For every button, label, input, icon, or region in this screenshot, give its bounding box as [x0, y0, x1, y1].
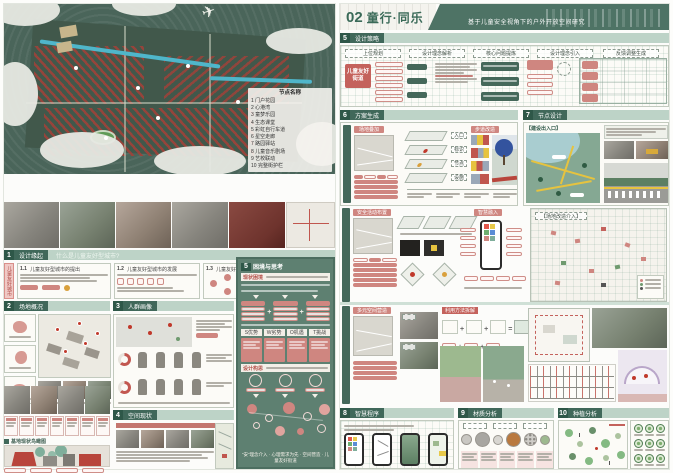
section-3-bar: 3 人群画像	[113, 301, 234, 311]
ground-stripe	[618, 394, 667, 402]
map-pin-icon	[63, 349, 68, 354]
dome-playground-render	[618, 350, 667, 402]
text-line	[206, 360, 232, 362]
problem-box	[481, 92, 519, 101]
grey-building	[43, 456, 57, 467]
feature-pill	[460, 252, 476, 256]
plan-tag	[552, 155, 566, 159]
text-line	[537, 453, 552, 455]
retrofit-plan: 【场地改造介入】	[530, 208, 667, 302]
text-line	[435, 66, 470, 68]
text-line	[311, 347, 328, 349]
plan-mark	[601, 227, 606, 231]
map-dot	[148, 331, 152, 335]
feature-pill-row	[464, 276, 526, 281]
column-header: 反馈调整生成	[603, 49, 659, 58]
persona-figure	[174, 352, 183, 368]
tree-symbol	[589, 427, 596, 434]
key-concept-box: 儿童友好街道	[345, 64, 371, 88]
pill-tag	[20, 285, 38, 290]
card-header	[98, 418, 108, 421]
mini-table	[407, 189, 517, 203]
text-line	[634, 449, 643, 451]
cloud-sketch	[112, 4, 176, 16]
section-swatch	[471, 135, 489, 145]
crosswalk-stripes	[608, 191, 664, 198]
tree-legend	[630, 420, 669, 469]
persona-figure	[138, 352, 147, 368]
mini-pill	[382, 258, 397, 262]
legend-item: 3 童梦乐园	[251, 112, 329, 119]
plan-mark	[555, 281, 561, 286]
section-9-bar: 9 材质分析	[458, 408, 554, 418]
layer-dot	[416, 163, 422, 167]
feature-card	[50, 416, 64, 436]
building-block	[66, 331, 84, 345]
text-line	[462, 456, 474, 458]
table-col	[436, 192, 461, 203]
section-5-bar: 5 设计策略	[340, 33, 669, 43]
card-header	[21, 418, 31, 421]
card-header	[52, 418, 62, 421]
node-legend: 节点名称 1 门户花园 2 心港湾 3 童梦乐园 4 生态课堂 5 彩虹自行车道…	[248, 88, 332, 172]
text-line	[481, 459, 496, 461]
text-line	[493, 196, 510, 198]
tree-icon	[656, 424, 665, 433]
pill-header	[241, 301, 265, 306]
text-line	[116, 451, 214, 453]
zone-patch	[439, 451, 446, 456]
text-line	[311, 341, 328, 343]
down-arrow-icon	[253, 295, 259, 299]
axon-line	[218, 431, 231, 438]
down-arrow-icon	[253, 394, 259, 398]
swot-detail	[241, 338, 262, 362]
section-number: 1	[4, 250, 14, 260]
airplane-sketch-icon	[202, 4, 215, 22]
material-swatch	[506, 432, 521, 447]
street-photo	[191, 430, 214, 448]
section-title: 困境与思考	[253, 262, 283, 271]
tree-icon	[634, 439, 643, 448]
text-line	[462, 453, 477, 455]
material-note	[480, 451, 497, 468]
plan-mark	[589, 269, 594, 273]
diamond-dot	[442, 272, 447, 277]
section-number: 4	[113, 410, 123, 420]
text-line	[518, 456, 530, 458]
plan-red-label	[609, 424, 625, 426]
pill-item	[527, 74, 553, 79]
formula-box	[490, 320, 506, 334]
legend-item: 4 生态课堂	[251, 120, 329, 127]
text-line	[116, 460, 190, 462]
column-header: 设计理念解析	[409, 49, 465, 58]
text-line	[462, 459, 477, 461]
text-line	[606, 128, 666, 130]
swot-cell: W劣势	[264, 329, 285, 336]
pill-item	[241, 307, 265, 311]
section-title: 方案生成	[350, 110, 384, 120]
text-line	[464, 196, 481, 198]
board-number: 02	[346, 9, 363, 26]
pill-row	[353, 366, 397, 370]
app-tile	[484, 224, 489, 229]
issue-col	[306, 301, 330, 321]
layer-label: 设施	[451, 174, 467, 181]
zone-patch	[433, 441, 439, 446]
text-line	[500, 453, 515, 455]
note-box	[604, 125, 668, 139]
card-header	[6, 418, 16, 421]
legend-item: 8 儿童音乐剧场	[251, 149, 329, 156]
caption-pill	[56, 468, 78, 473]
app-tile	[353, 447, 357, 451]
elevation-band	[530, 388, 614, 399]
section-number: 8	[340, 408, 350, 418]
bubble	[319, 404, 330, 415]
swot-cell: O机遇	[287, 329, 308, 336]
persona-figure	[156, 352, 165, 368]
site-photo	[116, 202, 171, 248]
accent-dot	[644, 374, 648, 378]
section-swatch	[471, 174, 489, 184]
birdseye-photo	[592, 308, 667, 348]
photo-tag	[402, 314, 416, 320]
text-line	[435, 63, 477, 65]
pill-item	[375, 62, 403, 67]
section-number: 6	[340, 110, 350, 120]
swot-row: S优势 W劣势 O机遇 T挑战	[241, 329, 330, 336]
pill-item	[527, 90, 553, 95]
section-number: 2	[4, 301, 14, 311]
plan-tag	[570, 193, 584, 197]
down-arrow-icon	[312, 394, 318, 398]
feature-pill	[506, 228, 522, 232]
plan-mark	[615, 265, 621, 270]
plan-mark	[624, 242, 630, 247]
feature-pill	[496, 276, 510, 281]
text-line	[407, 193, 432, 195]
grey-building	[63, 454, 75, 467]
pill-row	[353, 361, 397, 365]
text-line	[266, 276, 328, 278]
pill-row	[353, 278, 397, 282]
text-line	[37, 425, 45, 427]
building-block	[84, 347, 100, 359]
persona-figure	[156, 379, 165, 395]
text-line	[117, 287, 173, 289]
section-title: 场地概况	[14, 301, 48, 311]
text-line	[645, 279, 661, 281]
text-line	[67, 422, 77, 424]
down-arrow-icon	[282, 295, 288, 299]
board-right-banner: 基于儿童安全视角下的户外开放空间研究	[428, 4, 669, 30]
pill-row	[354, 185, 398, 189]
label-square-icon	[4, 439, 9, 444]
text-line	[196, 329, 220, 331]
vertical-tab	[342, 306, 350, 404]
method-label: 利用方法拆解	[442, 307, 478, 314]
pill-row	[353, 371, 397, 375]
text-line	[435, 72, 464, 74]
tree-legend-item	[634, 439, 643, 452]
section-title: 空间现状	[123, 410, 157, 420]
text-line	[67, 425, 75, 427]
text-line	[20, 280, 97, 282]
vertical-tab	[342, 208, 350, 302]
plus-icon	[267, 301, 271, 319]
plan-mark	[561, 261, 566, 265]
concept-circles	[241, 374, 330, 392]
layer-plate	[404, 173, 447, 183]
app-grid	[482, 222, 500, 243]
camera-phone	[400, 433, 420, 466]
cad-diagram	[286, 202, 335, 248]
node-label: 【建设出入口】	[526, 125, 561, 132]
feature-pill	[480, 276, 494, 281]
street-photo	[141, 430, 164, 448]
persona-figure	[174, 379, 183, 395]
timeline-icon	[127, 278, 134, 285]
text-line	[241, 290, 318, 292]
text-line	[6, 425, 14, 427]
section-8-bar: 8 智慧程序	[340, 408, 454, 418]
flow-node	[224, 274, 231, 281]
entrance-plan	[526, 133, 600, 203]
text-line	[344, 429, 394, 431]
flow-node	[210, 280, 217, 287]
elevation-drawings	[528, 364, 616, 402]
tree-icon	[645, 454, 654, 463]
section-title: 智慧程序	[350, 408, 384, 418]
feature-card	[65, 416, 79, 436]
pill-item	[375, 76, 403, 81]
section-title: 设计策略	[350, 33, 384, 43]
table-key-cell	[582, 61, 598, 69]
mini-pill	[377, 175, 386, 179]
block-label: 设计构思	[243, 365, 263, 372]
facility-plate	[423, 216, 452, 229]
tree-legend-item	[645, 454, 654, 467]
text-line	[20, 277, 90, 279]
strategy-pill-stack	[353, 360, 397, 380]
board-right-title-block: 02 童行·同乐	[340, 4, 436, 30]
block-concept: 设计构思	[241, 364, 330, 372]
swot-cell: S优势	[241, 329, 262, 336]
pill-row	[354, 180, 398, 184]
road-line	[357, 159, 393, 165]
formula-box	[442, 320, 458, 334]
material-swatch	[493, 435, 503, 445]
tree-render	[492, 135, 517, 185]
artwork-photo	[229, 202, 285, 248]
smartphone-mockup	[480, 220, 502, 270]
concept-caption: “安”理念介入 · 心理需求为先 · 空间营造 · 儿童友好街道	[241, 452, 330, 464]
app-tile	[490, 236, 495, 241]
text-line	[656, 464, 665, 466]
formula-box	[466, 320, 482, 334]
legend-dot	[640, 283, 643, 286]
idea-circle	[557, 62, 571, 76]
feature-pill	[512, 276, 526, 281]
material-note	[517, 451, 534, 468]
crossing-render	[604, 163, 668, 203]
text-line	[52, 425, 60, 427]
node-marker	[156, 116, 160, 120]
material-swatch	[461, 434, 472, 445]
tree-legend-item	[634, 424, 643, 437]
equals-icon	[508, 318, 512, 336]
diamond-dot	[410, 272, 415, 277]
down-arrow-icon	[312, 295, 318, 299]
app-tile	[490, 230, 495, 235]
tree-dot	[556, 191, 561, 196]
pie-chart	[118, 353, 131, 366]
yellow-path	[536, 180, 591, 192]
red-structure	[79, 454, 101, 467]
app-phone	[344, 433, 364, 466]
section-9-content	[458, 420, 554, 469]
pie-hole	[121, 356, 128, 363]
node-marker	[186, 64, 190, 68]
overlay-label: 场地叠加	[354, 126, 384, 133]
block-dilemma: 现状困境	[241, 273, 330, 281]
material-swatch	[524, 433, 537, 446]
text-line	[82, 422, 92, 424]
swot-detail	[287, 338, 308, 362]
board-right: 02 童行·同乐 基于儿童安全视角下的户外开放空间研究 5 设计策略 上位规划 …	[340, 4, 669, 469]
site-photo	[172, 202, 228, 248]
mid-band: 安全活动布置 智慧融入	[340, 208, 669, 302]
layer-dot	[422, 149, 428, 153]
app-tile	[484, 236, 489, 241]
persona-figure	[192, 352, 201, 368]
cloud-sketch	[154, 146, 246, 174]
legend-title: 节点名称	[251, 90, 329, 98]
feedback-table	[579, 58, 667, 104]
plus-icon	[460, 318, 464, 336]
concept-item	[275, 374, 295, 392]
card-no: 1.3	[206, 266, 213, 273]
app-tile	[490, 224, 495, 229]
feature-card-row	[4, 416, 110, 436]
section-2-bar: 2 场地概况	[4, 301, 110, 311]
pill-item	[273, 312, 297, 316]
section-swatch	[471, 148, 489, 158]
material-note	[499, 451, 516, 468]
board-subtitle: 基于儿童安全视角下的户外开放空间研究	[468, 17, 585, 26]
material-tag	[493, 423, 517, 429]
tree-symbol	[565, 429, 573, 437]
layer-label: 标识	[451, 146, 467, 153]
text-line	[645, 287, 661, 289]
notes-block	[196, 319, 232, 338]
text-line	[243, 347, 260, 349]
diagram-line	[293, 223, 329, 224]
badge-icon	[64, 285, 70, 291]
pill-row	[353, 283, 397, 287]
green-tag	[407, 92, 427, 98]
text-line	[196, 320, 232, 322]
red-structure	[11, 452, 37, 467]
text-line	[500, 459, 515, 461]
node-axon-plan	[528, 308, 590, 362]
problem-box	[481, 77, 519, 86]
pill-item	[375, 97, 403, 102]
green-tag	[407, 64, 427, 70]
section-number: 5	[241, 263, 251, 271]
text-line	[493, 193, 518, 195]
axon-line	[218, 443, 231, 450]
site-axonometric-map	[38, 314, 111, 378]
section-10-content	[558, 420, 669, 469]
strategy-pill-stack	[353, 258, 397, 287]
existing-photo	[400, 342, 438, 369]
idea-box	[527, 60, 553, 70]
table-key-cell	[582, 94, 598, 102]
elevation-band	[530, 377, 614, 388]
tree-icon	[656, 454, 665, 463]
app-tile	[348, 442, 352, 446]
tree-icon	[634, 454, 643, 463]
table-key-cell	[582, 72, 598, 80]
text-line	[518, 453, 533, 455]
text-line	[344, 425, 414, 427]
map-pin-icon	[95, 331, 100, 336]
text-line	[645, 449, 654, 451]
text-line	[243, 341, 260, 343]
pill-item	[375, 90, 403, 95]
table-key-cell	[582, 83, 598, 91]
red-path	[492, 176, 517, 183]
text-line	[21, 422, 31, 424]
text-line	[518, 459, 533, 461]
mini-pill	[364, 175, 375, 179]
pill-item	[306, 312, 330, 316]
mini-pill	[354, 175, 363, 179]
building-block	[62, 357, 80, 370]
plan-mark	[601, 283, 606, 287]
board-title: 童行·同乐	[367, 9, 424, 26]
pill-item	[273, 317, 297, 321]
node-dot	[595, 447, 598, 450]
feature-pill	[464, 276, 478, 281]
section-7-content: 【建设出入口】	[523, 122, 669, 206]
node-marker	[74, 66, 78, 70]
feature-pill	[460, 236, 476, 240]
material-swatch	[475, 432, 490, 447]
text-line	[483, 80, 517, 82]
existing-photo	[400, 312, 438, 339]
pill-row	[354, 190, 398, 194]
pill-item	[273, 307, 297, 311]
diagram-line	[309, 209, 310, 241]
text-line	[98, 425, 106, 427]
section-4-bar: 4 空间现状	[113, 410, 234, 420]
side-tab-child-friendly-city: 儿童友好城市	[4, 263, 14, 299]
pie-hole	[121, 384, 128, 391]
text-line	[98, 422, 108, 424]
zone-map-phone	[428, 433, 448, 466]
flow-node	[224, 288, 231, 295]
mini-pill	[353, 258, 368, 262]
street-photo	[116, 430, 139, 448]
building-photo	[85, 386, 110, 414]
section-5-concept-panel: 5 困境与思考 现状困境 S优势 W劣势 O机遇 T挑战 设计构思	[236, 257, 335, 469]
material-swatch	[540, 435, 550, 445]
vertical-tab	[343, 125, 351, 203]
